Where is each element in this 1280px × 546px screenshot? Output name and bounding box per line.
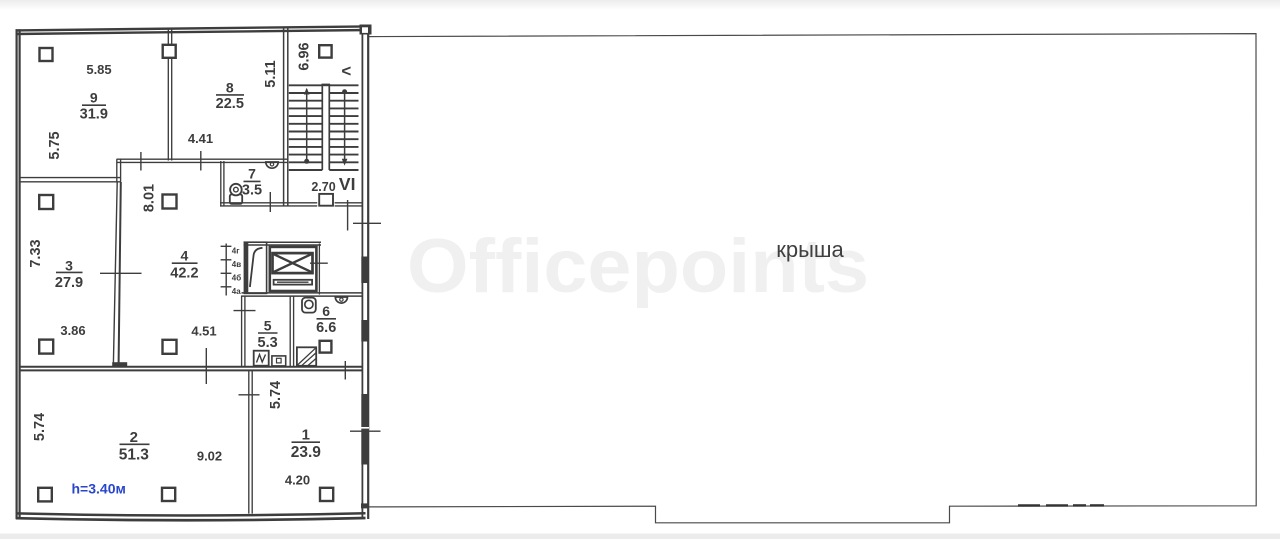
- svg-text:8.01: 8.01: [141, 184, 157, 212]
- svg-text:27.9: 27.9: [55, 275, 83, 291]
- svg-text:42.2: 42.2: [170, 266, 198, 282]
- svg-text:22.5: 22.5: [216, 96, 244, 112]
- svg-text:23.9: 23.9: [291, 444, 322, 461]
- svg-text:3.86: 3.86: [60, 323, 85, 338]
- svg-text:6.96: 6.96: [297, 42, 313, 70]
- svg-text:крыша: крыша: [776, 237, 844, 262]
- svg-text:2: 2: [130, 429, 138, 446]
- svg-text:7.33: 7.33: [28, 239, 44, 267]
- svg-text:51.3: 51.3: [119, 446, 150, 463]
- svg-text:4.41: 4.41: [188, 131, 213, 146]
- svg-text:6.6: 6.6: [316, 320, 336, 336]
- svg-text:9: 9: [90, 90, 98, 106]
- svg-text:5.3: 5.3: [258, 335, 278, 351]
- svg-text:4в: 4в: [232, 260, 241, 269]
- svg-text:5.11: 5.11: [263, 60, 279, 87]
- svg-text:4а: 4а: [232, 287, 241, 296]
- svg-text:5: 5: [264, 318, 272, 334]
- svg-text:1: 1: [302, 427, 310, 444]
- svg-text:5.74: 5.74: [268, 381, 284, 409]
- svg-text:h=3.40м: h=3.40м: [72, 481, 126, 497]
- svg-text:3.5: 3.5: [242, 183, 262, 199]
- svg-text:<: <: [341, 62, 351, 81]
- svg-text:4.20: 4.20: [285, 473, 310, 488]
- svg-text:2.70: 2.70: [311, 180, 335, 194]
- svg-text:4.51: 4.51: [191, 324, 216, 339]
- svg-text:5.74: 5.74: [32, 413, 48, 441]
- svg-text:4б: 4б: [232, 274, 241, 283]
- svg-text:5.75: 5.75: [47, 131, 63, 159]
- svg-text:31.9: 31.9: [80, 106, 108, 122]
- svg-text:VI: VI: [339, 174, 356, 194]
- svg-text:6: 6: [322, 303, 330, 319]
- svg-text:7: 7: [248, 166, 256, 182]
- svg-text:4: 4: [181, 248, 189, 264]
- svg-text:5.85: 5.85: [86, 62, 111, 77]
- svg-text:8: 8: [226, 79, 234, 95]
- svg-text:4г: 4г: [232, 247, 240, 256]
- svg-text:3: 3: [65, 257, 73, 273]
- svg-text:9.02: 9.02: [197, 449, 222, 464]
